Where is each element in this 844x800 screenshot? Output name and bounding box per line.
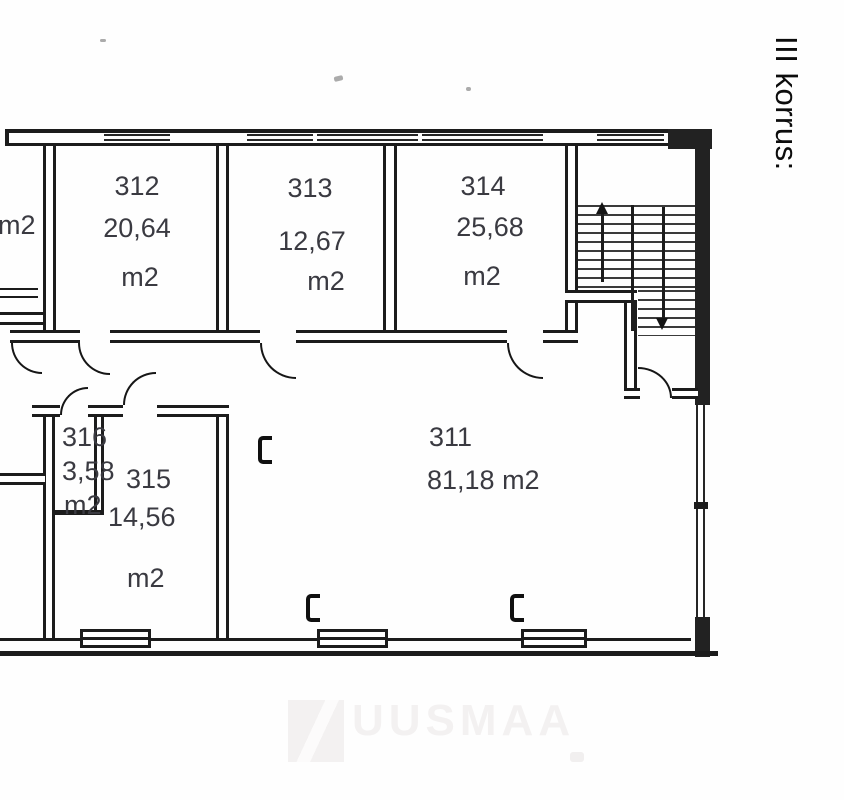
door-room314 <box>507 343 543 379</box>
room-311-area: 81,18 m2 <box>427 465 540 495</box>
room-316-unit: m2 <box>64 490 102 520</box>
stair-down-arrow-shaft <box>662 207 665 320</box>
wall-314-stair <box>565 146 578 343</box>
room-314-number: 314 <box>448 171 518 201</box>
wall-corridor-north-2 <box>110 330 260 343</box>
wall-corridor-south-2 <box>88 405 123 417</box>
radiator-icon-311-bottom-left <box>306 594 320 622</box>
wall-leftedge-stub <box>0 312 43 325</box>
room-312-area: 20,64 <box>97 213 177 243</box>
floorplan-canvas: m2 312 20,64 m2 313 12,67 m2 314 25,68 m… <box>0 0 844 800</box>
room-313-area: 12,67 <box>272 226 352 256</box>
wall-corridor-north-4 <box>543 330 578 343</box>
stair-down-arrow-icon <box>656 318 668 330</box>
wall-313-314 <box>383 146 397 333</box>
window-room314 <box>422 134 543 141</box>
stair-stringer <box>631 205 634 331</box>
door-room313 <box>260 343 296 379</box>
window-room315-bottom <box>80 629 151 648</box>
room-314-area: 25,68 <box>448 212 532 242</box>
room-315-number: 315 <box>126 464 171 494</box>
watermark-logo <box>288 700 344 762</box>
window-stairwell <box>597 134 664 141</box>
window-right-mullion <box>694 502 708 509</box>
window-room313-b <box>317 134 418 141</box>
room-314-unit: m2 <box>450 261 514 291</box>
window-room311-right <box>696 405 705 617</box>
watermark-dot <box>570 752 584 762</box>
wall-315-311 <box>216 405 229 638</box>
floor-title: III korrus: <box>768 36 804 171</box>
window-room313-a <box>247 134 313 141</box>
room-315-area: 14,56 <box>108 502 176 532</box>
window-room311-bottom-left <box>317 629 388 648</box>
stair-upper-flight <box>578 205 695 290</box>
wall-bottom-outer-line <box>0 651 718 656</box>
door-room315 <box>123 372 156 405</box>
room-316-area: 3,58 <box>62 456 115 486</box>
wall-leftroom-lower-stub <box>0 473 45 485</box>
room-312-number: 312 <box>102 171 172 201</box>
room-left-unit: m2 <box>0 210 36 240</box>
wall-leftroom-315 <box>43 405 55 638</box>
room-313-unit: m2 <box>295 266 357 296</box>
wall-leftroom-312 <box>43 146 56 333</box>
door-room312 <box>78 343 110 375</box>
room-315-unit: m2 <box>127 563 165 593</box>
window-room312 <box>104 134 170 141</box>
window-room311-bottom-right <box>521 629 587 648</box>
door-left-vestibule <box>11 343 42 374</box>
radiator-icon-311-left <box>258 436 272 464</box>
scan-speck <box>466 87 471 91</box>
stair-up-arrow-icon <box>596 202 608 214</box>
wall-312-313 <box>216 146 229 333</box>
radiator-icon-311-bottom-right <box>510 594 524 622</box>
room-312-unit: m2 <box>110 262 170 292</box>
watermark-text: UUSMAA <box>352 696 575 746</box>
wall-corridor-north-3 <box>296 330 507 343</box>
wall-top-outer-line <box>5 129 712 133</box>
wall-corridor-south-3 <box>157 405 229 417</box>
scan-speck <box>334 75 344 82</box>
wall-stair-bottom-right <box>672 388 698 399</box>
wall-top-inner-line <box>5 143 710 146</box>
room-311-number: 311 <box>429 422 472 452</box>
wall-right-upper <box>695 129 710 405</box>
wall-corridor-north-1 <box>10 330 80 343</box>
wall-corridor-south-1 <box>32 405 60 417</box>
scan-speck <box>100 39 106 42</box>
door-room316 <box>60 387 88 415</box>
stair-up-arrow-shaft <box>601 214 604 282</box>
wall-stair-midlanding <box>565 290 637 303</box>
wall-leftedge-window-stub <box>0 288 38 298</box>
wall-top-left-cap <box>5 129 9 146</box>
door-stairwell <box>638 367 672 398</box>
room-313-number: 313 <box>275 173 345 203</box>
room-316-number: 316 <box>62 422 107 452</box>
